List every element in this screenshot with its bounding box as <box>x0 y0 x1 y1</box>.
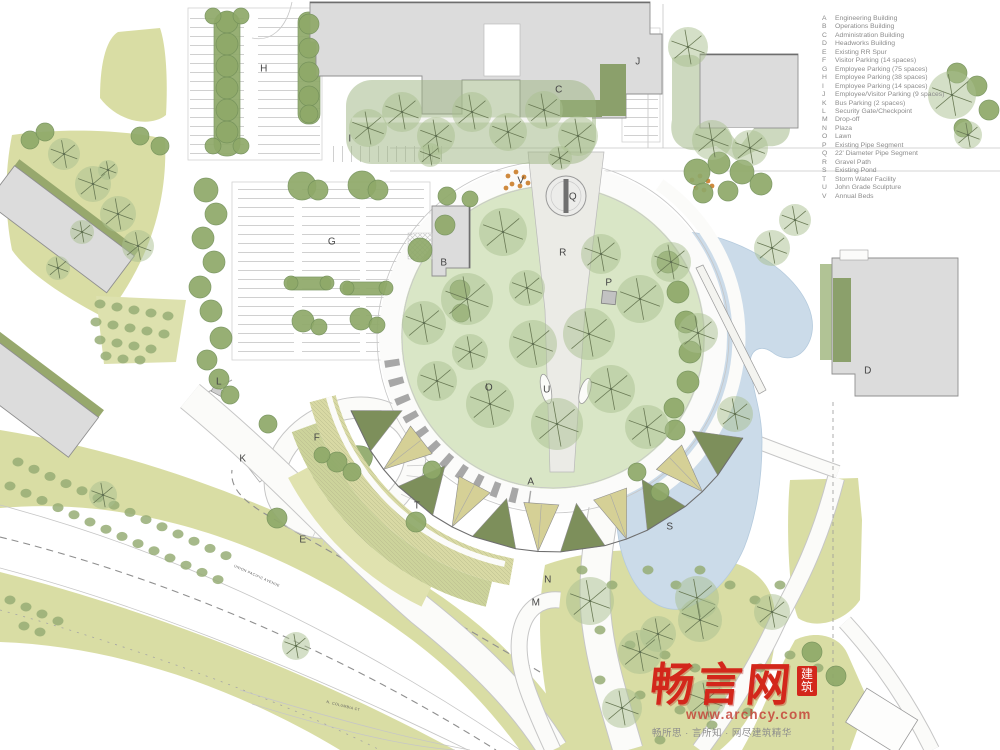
tree <box>349 109 387 147</box>
legend-key: R <box>822 159 835 167</box>
tree <box>587 365 635 413</box>
tree <box>525 91 563 129</box>
tree <box>732 130 768 166</box>
tree <box>563 308 615 360</box>
watermark-logo: 畅言网 <box>647 661 796 711</box>
legend-item: JEmployee/Visitor Parking (9 spaces) <box>822 91 1000 99</box>
legend-key: L <box>822 108 835 116</box>
legend-key: B <box>822 23 835 31</box>
legend-key: A <box>822 15 835 23</box>
legend-label: Existing Pipe Segment <box>835 142 1000 150</box>
legend-key: V <box>822 193 835 201</box>
plan-label-j: J <box>635 57 641 68</box>
legend-item: VAnnual Beds <box>822 193 1000 201</box>
tree <box>98 160 118 180</box>
tree <box>402 301 446 345</box>
tree <box>548 146 572 170</box>
tree <box>70 220 94 244</box>
tree <box>122 230 154 262</box>
legend-label: Employee Parking (14 spaces) <box>835 83 1000 91</box>
legend-label: Annual Beds <box>835 193 1000 201</box>
legend-key: H <box>822 74 835 82</box>
legend-key: F <box>822 57 835 65</box>
plan-label-v: V <box>517 176 524 187</box>
legend-item: BOperations Building <box>822 23 1000 31</box>
plan-label-b: B <box>440 258 447 269</box>
legend-label: Employee/Visitor Parking (9 spaces) <box>835 91 1000 99</box>
tree <box>531 398 583 450</box>
legend-item: LSecurity Gate/Checkpoint <box>822 108 1000 116</box>
legend-label: Security Gate/Checkpoint <box>835 108 1000 116</box>
tree <box>452 92 492 132</box>
legend-label: Plaza <box>835 125 1000 133</box>
legend-label: Headworks Building <box>835 40 1000 48</box>
plan-label-c: C <box>555 85 563 96</box>
tree <box>46 256 70 280</box>
legend-key: P <box>822 142 835 150</box>
tree <box>418 143 442 167</box>
tree <box>717 396 753 432</box>
tree <box>382 92 422 132</box>
legend-key: O <box>822 133 835 141</box>
legend-label: Drop-off <box>835 116 1000 124</box>
legend-item: HEmployee Parking (38 spaces) <box>822 74 1000 82</box>
legend-item: NPlaza <box>822 125 1000 133</box>
plan-label-d: D <box>864 366 872 377</box>
plan-label-n: N <box>544 575 552 586</box>
legend-item: Q22' Diameter Pipe Segment <box>822 150 1000 158</box>
plan-label-q: Q <box>569 192 577 203</box>
legend-key: T <box>822 176 835 184</box>
plan-label-r: R <box>559 248 567 259</box>
plan-label-g: G <box>328 237 336 248</box>
legend-label: Administration Building <box>835 32 1000 40</box>
legend-label: John Grade Sculpture <box>835 184 1000 192</box>
legend-item: IEmployee Parking (14 spaces) <box>822 83 1000 91</box>
legend-item: KBus Parking (2 spaces) <box>822 100 1000 108</box>
tree <box>417 361 457 401</box>
legend-key: I <box>822 83 835 91</box>
plan-label-m: M <box>532 598 541 609</box>
legend-label: Visitor Parking (14 spaces) <box>835 57 1000 65</box>
legend-item: GEmployee Parking (75 spaces) <box>822 66 1000 74</box>
tree <box>692 120 732 160</box>
building-b <box>432 206 470 276</box>
legend-label: Engineering Building <box>835 15 1000 23</box>
legend-item: PExisting Pipe Segment <box>822 142 1000 150</box>
tree <box>651 242 691 282</box>
tree <box>282 632 310 660</box>
legend-item: EExisting RR Spur <box>822 49 1000 57</box>
tree <box>668 27 708 67</box>
building-top-right <box>700 54 798 128</box>
legend-key: E <box>822 49 835 57</box>
pipe-segment-p <box>601 290 616 304</box>
legend-item: OLawn <box>822 133 1000 141</box>
tree <box>581 234 621 274</box>
plan-label-e: E <box>299 535 306 546</box>
legend-label: Bus Parking (2 spaces) <box>835 100 1000 108</box>
legend-label: Existing Pond <box>835 167 1000 175</box>
legend-item: TStorm Water Facility <box>822 176 1000 184</box>
legend-key: G <box>822 66 835 74</box>
legend-label: 22' Diameter Pipe Segment <box>835 150 1000 158</box>
legend-key: U <box>822 184 835 192</box>
legend-item: CAdministration Building <box>822 32 1000 40</box>
legend-key: Q <box>822 150 835 158</box>
legend-item: DHeadworks Building <box>822 40 1000 48</box>
watermark-tagline: 畅所思 · 言所知 · 网尽建筑精华 <box>652 725 900 739</box>
legend-label: Gravel Path <box>835 159 1000 167</box>
legend-key: J <box>822 91 835 99</box>
plan-label-i: I <box>348 134 351 145</box>
legend-item: FVisitor Parking (14 spaces) <box>822 57 1000 65</box>
legend-key: K <box>822 100 835 108</box>
tree <box>616 275 664 323</box>
legend-key: D <box>822 40 835 48</box>
legend-item: UJohn Grade Sculpture <box>822 184 1000 192</box>
watermark: 畅言网 建筑 www.archcy.com 畅所思 · 言所知 · 网尽建筑精华 <box>650 662 900 739</box>
legend-label: Lawn <box>835 133 1000 141</box>
plan-label-p: P <box>605 278 612 289</box>
tree <box>441 273 493 325</box>
site-plan-page: ABCDEFGHIJKLMNOPQRSTUV UNION PACIFIC AVE… <box>0 0 1000 750</box>
tree <box>678 598 722 642</box>
tree <box>625 405 669 449</box>
plan-label-t: T <box>414 501 421 512</box>
plan-label-u: U <box>543 385 551 396</box>
tree <box>754 594 790 630</box>
tree <box>48 138 80 170</box>
plan-label-a: A <box>527 477 534 488</box>
legend-item: SExisting Pond <box>822 167 1000 175</box>
tree <box>509 270 545 306</box>
legend-key: S <box>822 167 835 175</box>
tree <box>754 230 790 266</box>
plan-label-f: F <box>314 433 321 444</box>
tree <box>779 204 811 236</box>
legend-label: Employee Parking (75 spaces) <box>835 66 1000 74</box>
tree <box>678 313 718 353</box>
plan-label-l: L <box>216 377 222 388</box>
watermark-badge: 建筑 <box>797 666 817 696</box>
legend-label: Operations Building <box>835 23 1000 31</box>
tree <box>602 688 642 728</box>
tree <box>479 208 527 256</box>
legend-key: C <box>822 32 835 40</box>
legend-label: Storm Water Facility <box>835 176 1000 184</box>
plan-label-s: S <box>666 522 673 533</box>
legend-key: N <box>822 125 835 133</box>
legend-item: AEngineering Building <box>822 15 1000 23</box>
tree <box>89 481 117 509</box>
legend: AEngineering BuildingBOperations Buildin… <box>822 15 1000 201</box>
plan-label-o: O <box>485 383 493 394</box>
tree <box>100 196 136 232</box>
legend-item: RGravel Path <box>822 159 1000 167</box>
tree <box>489 113 527 151</box>
legend-label: Existing RR Spur <box>835 49 1000 57</box>
plan-label-k: K <box>239 454 246 465</box>
legend-label: Employee Parking (38 spaces) <box>835 74 1000 82</box>
plan-label-h: H <box>260 64 268 75</box>
tree <box>452 334 488 370</box>
legend-key: M <box>822 116 835 124</box>
tree <box>566 577 614 625</box>
tree <box>509 320 557 368</box>
legend-item: MDrop-off <box>822 116 1000 124</box>
